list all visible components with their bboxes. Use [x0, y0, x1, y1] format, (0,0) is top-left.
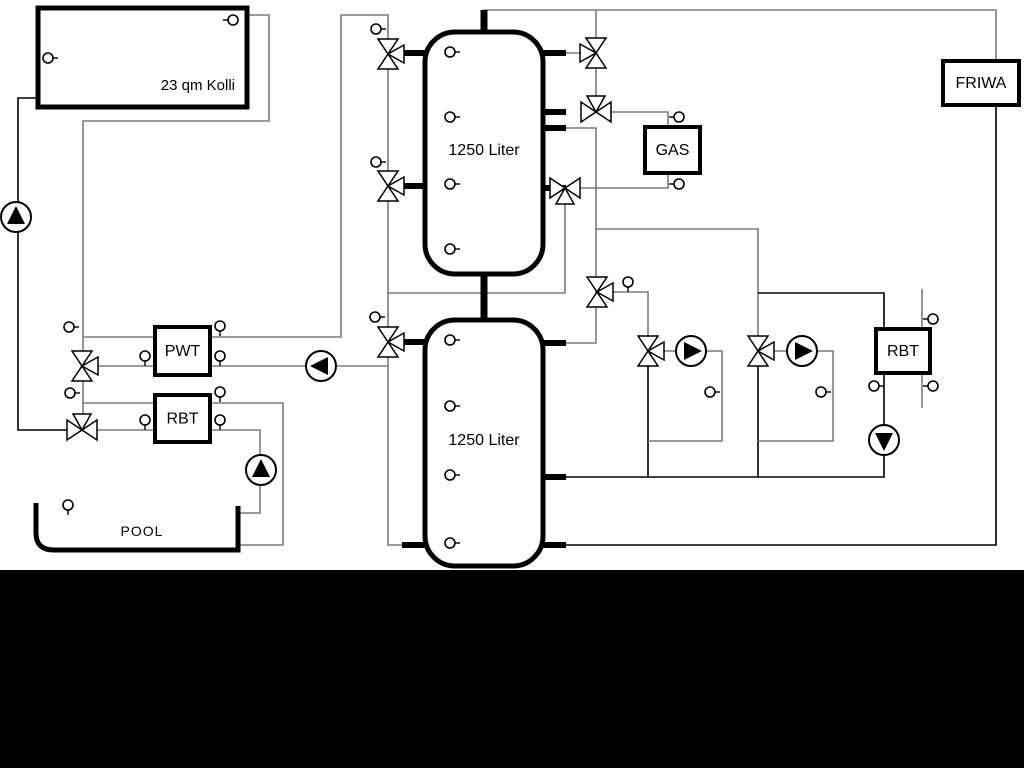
sensor-bulb [445, 538, 455, 548]
rbt-right-label: RBT [887, 343, 919, 360]
pump-icon [676, 336, 706, 366]
sensor-bulb [445, 112, 455, 122]
sensor-bulb [64, 322, 74, 332]
collector-label: 23 qm Kolli [161, 77, 235, 94]
pwt-label: PWT [165, 343, 201, 360]
sensor-bulb [705, 387, 715, 397]
sensor-bulb [869, 381, 879, 391]
hydraulic-schematic-diagram: 23 qm KolliGASFRIWAPWTRBTRBT1250 Liter12… [0, 0, 1024, 768]
schematic-page: 23 qm KolliGASFRIWAPWTRBTRBT1250 Liter12… [0, 0, 1024, 768]
sensor-bulb [140, 415, 150, 425]
sensor-bulb [623, 277, 633, 287]
pump-icon [1, 202, 31, 232]
sensor-bulb [371, 24, 381, 34]
friwa-label: FRIWA [956, 75, 1007, 92]
sensor-bulb [674, 179, 684, 189]
tank-upper-label: 1250 Liter [448, 142, 520, 159]
rbt-left-label: RBT [167, 411, 199, 428]
pump-icon [306, 351, 336, 381]
sensor-bulb [140, 351, 150, 361]
sensor-bulb [228, 15, 238, 25]
sensor-bulb [445, 47, 455, 57]
pump-icon [246, 455, 276, 485]
sensor-bulb [445, 470, 455, 480]
sensor-bulb [370, 312, 380, 322]
sensor-bulb [63, 500, 73, 510]
gas-label: GAS [656, 142, 690, 159]
pump-icon [869, 425, 899, 455]
sensor-bulb [43, 53, 53, 63]
pump-icon [787, 336, 817, 366]
bottom-black-bar [0, 570, 1024, 768]
sensor-bulb [371, 157, 381, 167]
sensor-bulb [215, 387, 225, 397]
sensor-bulb [445, 401, 455, 411]
pool-label: POOL [121, 523, 164, 539]
sensor-bulb [816, 387, 826, 397]
sensor-bulb [65, 388, 75, 398]
tank-lower-label: 1250 Liter [448, 432, 520, 449]
sensor-bulb [215, 415, 225, 425]
sensor-bulb [674, 112, 684, 122]
sensor-bulb [928, 381, 938, 391]
sensor-bulb [928, 314, 938, 324]
sensor-bulb [215, 351, 225, 361]
sensor-bulb [445, 244, 455, 254]
sensor-bulb [215, 321, 225, 331]
sensor-bulb [445, 179, 455, 189]
sensor-bulb [445, 335, 455, 345]
